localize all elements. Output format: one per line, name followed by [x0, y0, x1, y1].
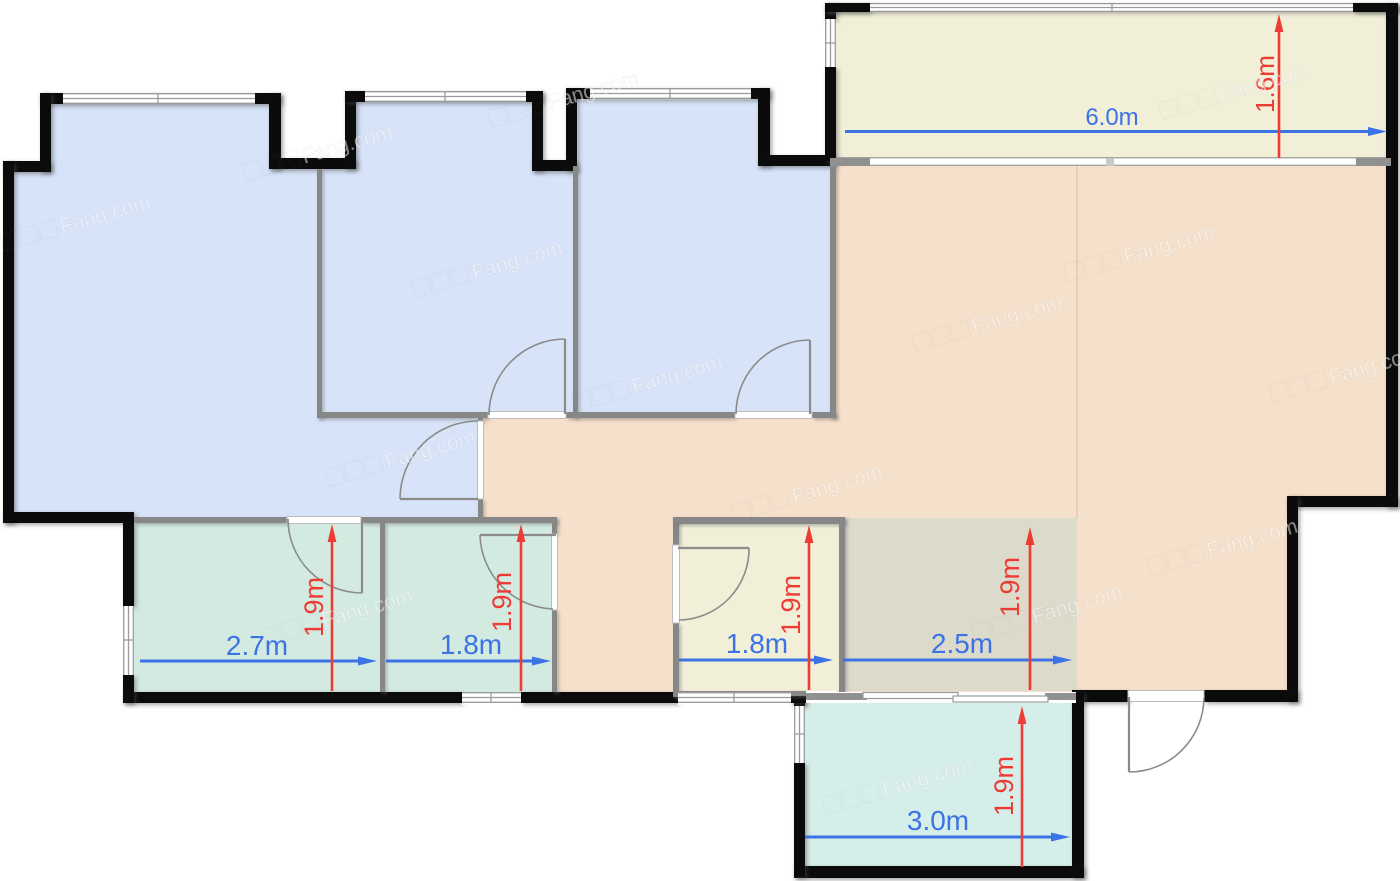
svg-text:Fang.com: Fang.com [545, 67, 641, 115]
svg-text:Fang.com: Fang.com [382, 426, 478, 474]
svg-text:1.9m: 1.9m [487, 572, 517, 632]
svg-text:Fang.com: Fang.com [1326, 342, 1400, 390]
svg-text:6.0m: 6.0m [1085, 104, 1138, 131]
svg-text:Fang.com: Fang.com [1029, 581, 1125, 629]
svg-text:1.8m: 1.8m [440, 629, 502, 660]
svg-text:Fang.com: Fang.com [319, 585, 415, 633]
svg-text:2.5m: 2.5m [931, 628, 993, 659]
svg-text:Fang.com: Fang.com [969, 291, 1065, 339]
svg-text:Fang.com: Fang.com [469, 237, 565, 285]
svg-text:1.9m: 1.9m [989, 756, 1019, 816]
svg-text:2.7m: 2.7m [226, 630, 288, 661]
svg-text:3.0m: 3.0m [907, 805, 969, 836]
svg-text:Fang.com: Fang.com [789, 461, 885, 509]
svg-text:Fang.com: Fang.com [1204, 515, 1300, 563]
svg-text:Fang.com: Fang.com [1121, 221, 1217, 269]
svg-text:1.9m: 1.9m [995, 557, 1025, 617]
svg-text:Fang.com: Fang.com [57, 191, 153, 239]
svg-text:Fang.com: Fang.com [629, 351, 725, 399]
svg-text:Fang.com: Fang.com [879, 754, 975, 802]
svg-text:Fang.com: Fang.com [299, 121, 395, 169]
svg-text:1.9m: 1.9m [776, 575, 806, 635]
